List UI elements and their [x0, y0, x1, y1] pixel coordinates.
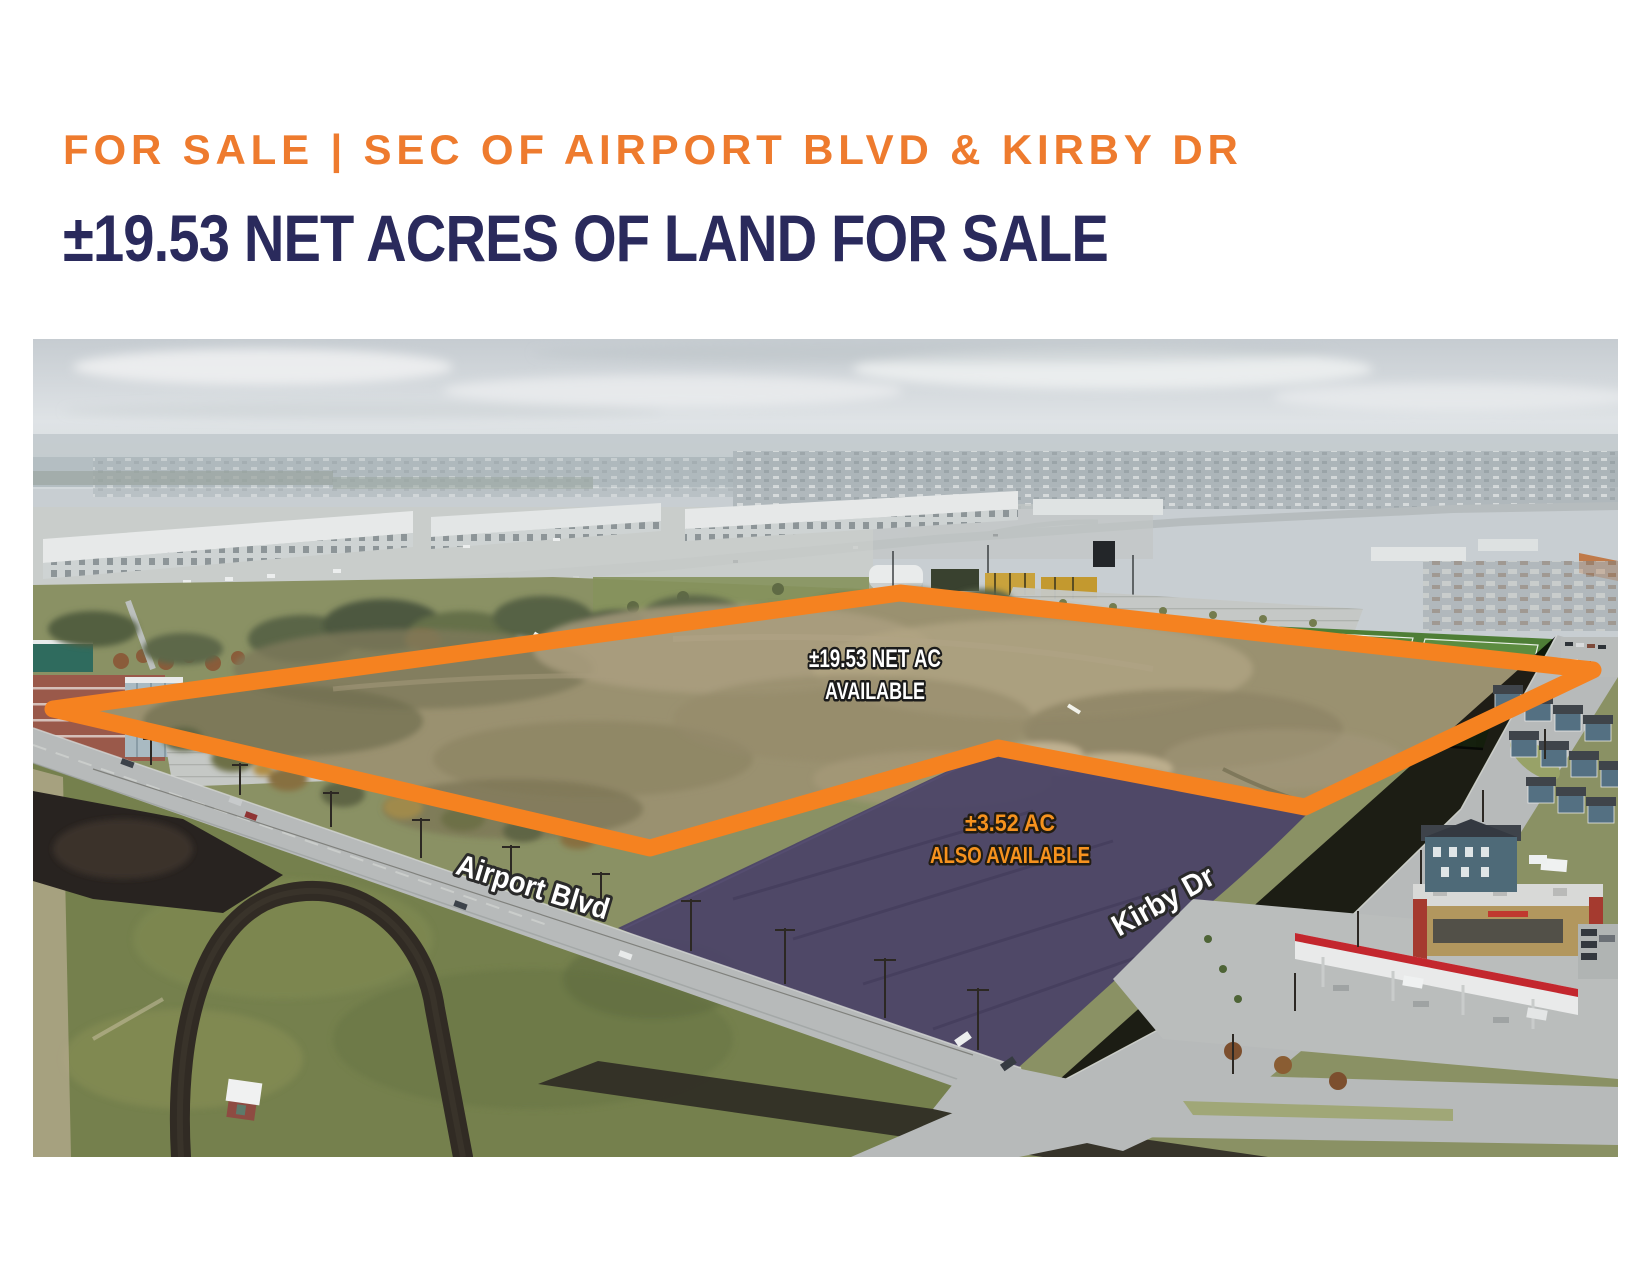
blue-house	[1421, 819, 1521, 892]
secondary-parcel-label-line1: ±3.52 AC	[965, 810, 1055, 837]
eyebrow-text: FOR SALE | SEC OF AIRPORT BLVD & KIRBY D…	[63, 126, 1243, 174]
primary-parcel-label-line2: AVAILABLE	[825, 678, 925, 705]
horizon-band	[33, 434, 1618, 509]
flyer-page: FOR SALE | SEC OF AIRPORT BLVD & KIRBY D…	[0, 0, 1650, 1275]
aerial-photo: ±19.53 NET AC AVAILABLE ±3.52 AC ALSO AV…	[33, 339, 1618, 1157]
secondary-parcel-label-line2: ALSO AVAILABLE	[930, 842, 1090, 868]
page-title: ±19.53 NET ACRES OF LAND FOR SALE	[63, 200, 1108, 276]
convenience-store	[1413, 884, 1603, 959]
primary-parcel-label-line1: ±19.53 NET AC	[809, 645, 941, 673]
